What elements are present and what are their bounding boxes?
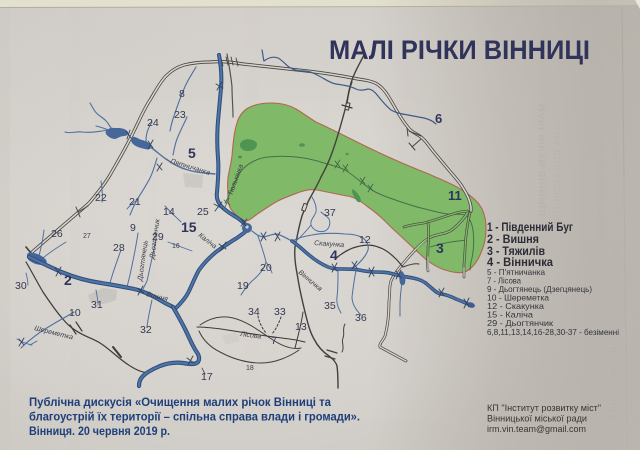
svg-text:25: 25: [197, 206, 209, 218]
svg-text:Публічна дискусія «Очищення ма: Публічна дискусія «Очищення малих річок …: [29, 395, 331, 409]
svg-text:27: 27: [83, 233, 91, 240]
svg-text:16: 16: [172, 243, 180, 250]
svg-text:МАЛІ РІЧКИ ВІННИЦІ: МАЛІ РІЧКИ ВІННИЦІ: [329, 35, 590, 65]
svg-text:4: 4: [330, 247, 338, 263]
svg-text:10: 10: [69, 307, 81, 319]
svg-text:ВЗОР ТУТИТСНІ: ВЗОР ТУТИТСНІ: [609, 347, 618, 420]
svg-text:37: 37: [324, 207, 336, 219]
svg-text:12: 12: [359, 234, 371, 246]
svg-text:22: 22: [95, 192, 107, 204]
svg-text:6,8,11,13,14,16-28,30-37 - без: 6,8,11,13,14,16-28,30-37 - безіменні: [487, 327, 619, 337]
svg-text:11: 11: [448, 188, 462, 203]
svg-text:20: 20: [260, 262, 272, 274]
svg-text:ОРП ЯІСУКСИД АН: ОРП ЯІСУКСИД АН: [552, 131, 562, 228]
svg-text:28: 28: [113, 242, 125, 254]
svg-text:ІЦИННІВ ИКЧІР ІЛАМ: ІЦИННІВ ИКЧІР ІЛАМ: [537, 103, 548, 216]
svg-text:15: 15: [181, 219, 197, 235]
svg-text:8: 8: [179, 88, 185, 100]
svg-text:2 - Вишня: 2 - Вишня: [487, 234, 539, 246]
svg-text:36: 36: [355, 312, 367, 324]
svg-text:32: 32: [140, 324, 152, 336]
svg-text:Вінницької міської ради: Вінницької міської ради: [487, 414, 587, 425]
svg-text:irm.vin.team@gmail.com: irm.vin.team@gmail.com: [487, 424, 586, 435]
svg-text:33: 33: [274, 306, 286, 318]
svg-text:21: 21: [129, 196, 141, 208]
svg-text:9: 9: [130, 222, 136, 234]
svg-text:34: 34: [248, 306, 260, 318]
svg-text:14: 14: [163, 206, 175, 218]
svg-text:19: 19: [237, 280, 249, 292]
svg-text:31: 31: [91, 299, 103, 311]
svg-text:3: 3: [436, 240, 444, 256]
svg-text:5: 5: [188, 145, 196, 161]
svg-text:2: 2: [64, 272, 72, 288]
svg-text:благоустрій їх території – спі: благоустрій їх території – спільна справ…: [29, 410, 360, 424]
svg-text:13: 13: [295, 321, 307, 333]
svg-text:1 - Південний Буг: 1 - Південний Буг: [487, 222, 573, 234]
svg-text:24: 24: [147, 117, 159, 129]
svg-text:Вінниця. 20 червня 2019 р.: Вінниця. 20 червня 2019 р.: [29, 424, 170, 438]
svg-text:17: 17: [201, 371, 213, 383]
svg-text:23: 23: [174, 109, 186, 121]
svg-text:35: 35: [324, 300, 336, 312]
svg-text:18: 18: [246, 365, 254, 372]
svg-text:30: 30: [15, 280, 27, 292]
svg-text:7: 7: [271, 335, 277, 347]
svg-text:АВАРПС АНЬЛІПС ПО: АВАРПС АНЬЛІПС ПО: [598, 142, 607, 240]
svg-text:КП "Інститут розвитку міст": КП "Інститут розвитку міст": [487, 403, 601, 414]
svg-text:26: 26: [51, 228, 63, 240]
svg-text:6: 6: [435, 111, 442, 126]
